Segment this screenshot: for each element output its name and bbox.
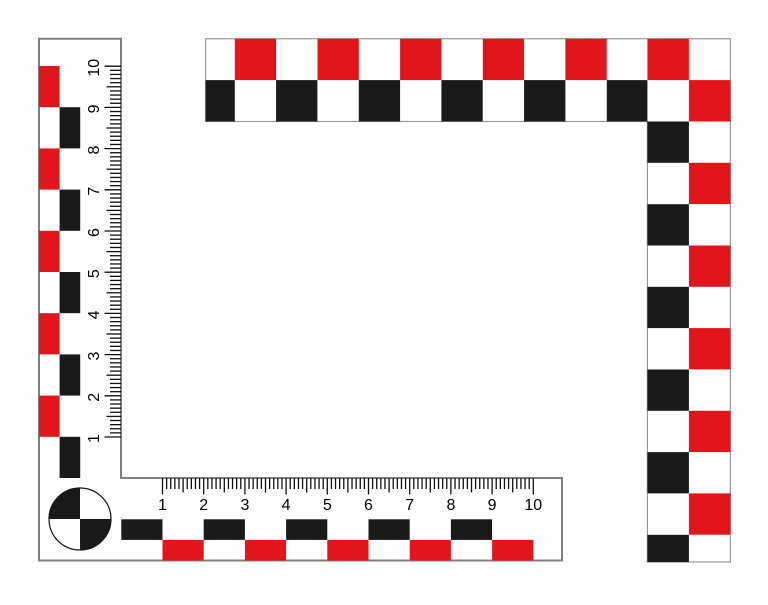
svg-text:4: 4 (282, 497, 291, 514)
svg-text:7: 7 (86, 187, 103, 196)
svg-text:6: 6 (86, 228, 103, 237)
svg-text:6: 6 (364, 497, 373, 514)
svg-text:9: 9 (86, 104, 103, 113)
svg-text:5: 5 (323, 497, 332, 514)
svg-text:8: 8 (86, 146, 103, 155)
svg-text:10: 10 (524, 497, 542, 514)
svg-text:3: 3 (86, 352, 103, 361)
svg-text:8: 8 (446, 497, 455, 514)
svg-text:2: 2 (86, 393, 103, 402)
svg-text:9: 9 (488, 497, 497, 514)
svg-text:7: 7 (405, 497, 414, 514)
svg-text:2: 2 (199, 497, 208, 514)
svg-text:1: 1 (158, 497, 167, 514)
svg-text:5: 5 (86, 269, 103, 278)
svg-text:3: 3 (240, 497, 249, 514)
svg-text:1: 1 (86, 434, 103, 443)
svg-text:4: 4 (86, 310, 103, 319)
svg-text:10: 10 (86, 59, 103, 77)
